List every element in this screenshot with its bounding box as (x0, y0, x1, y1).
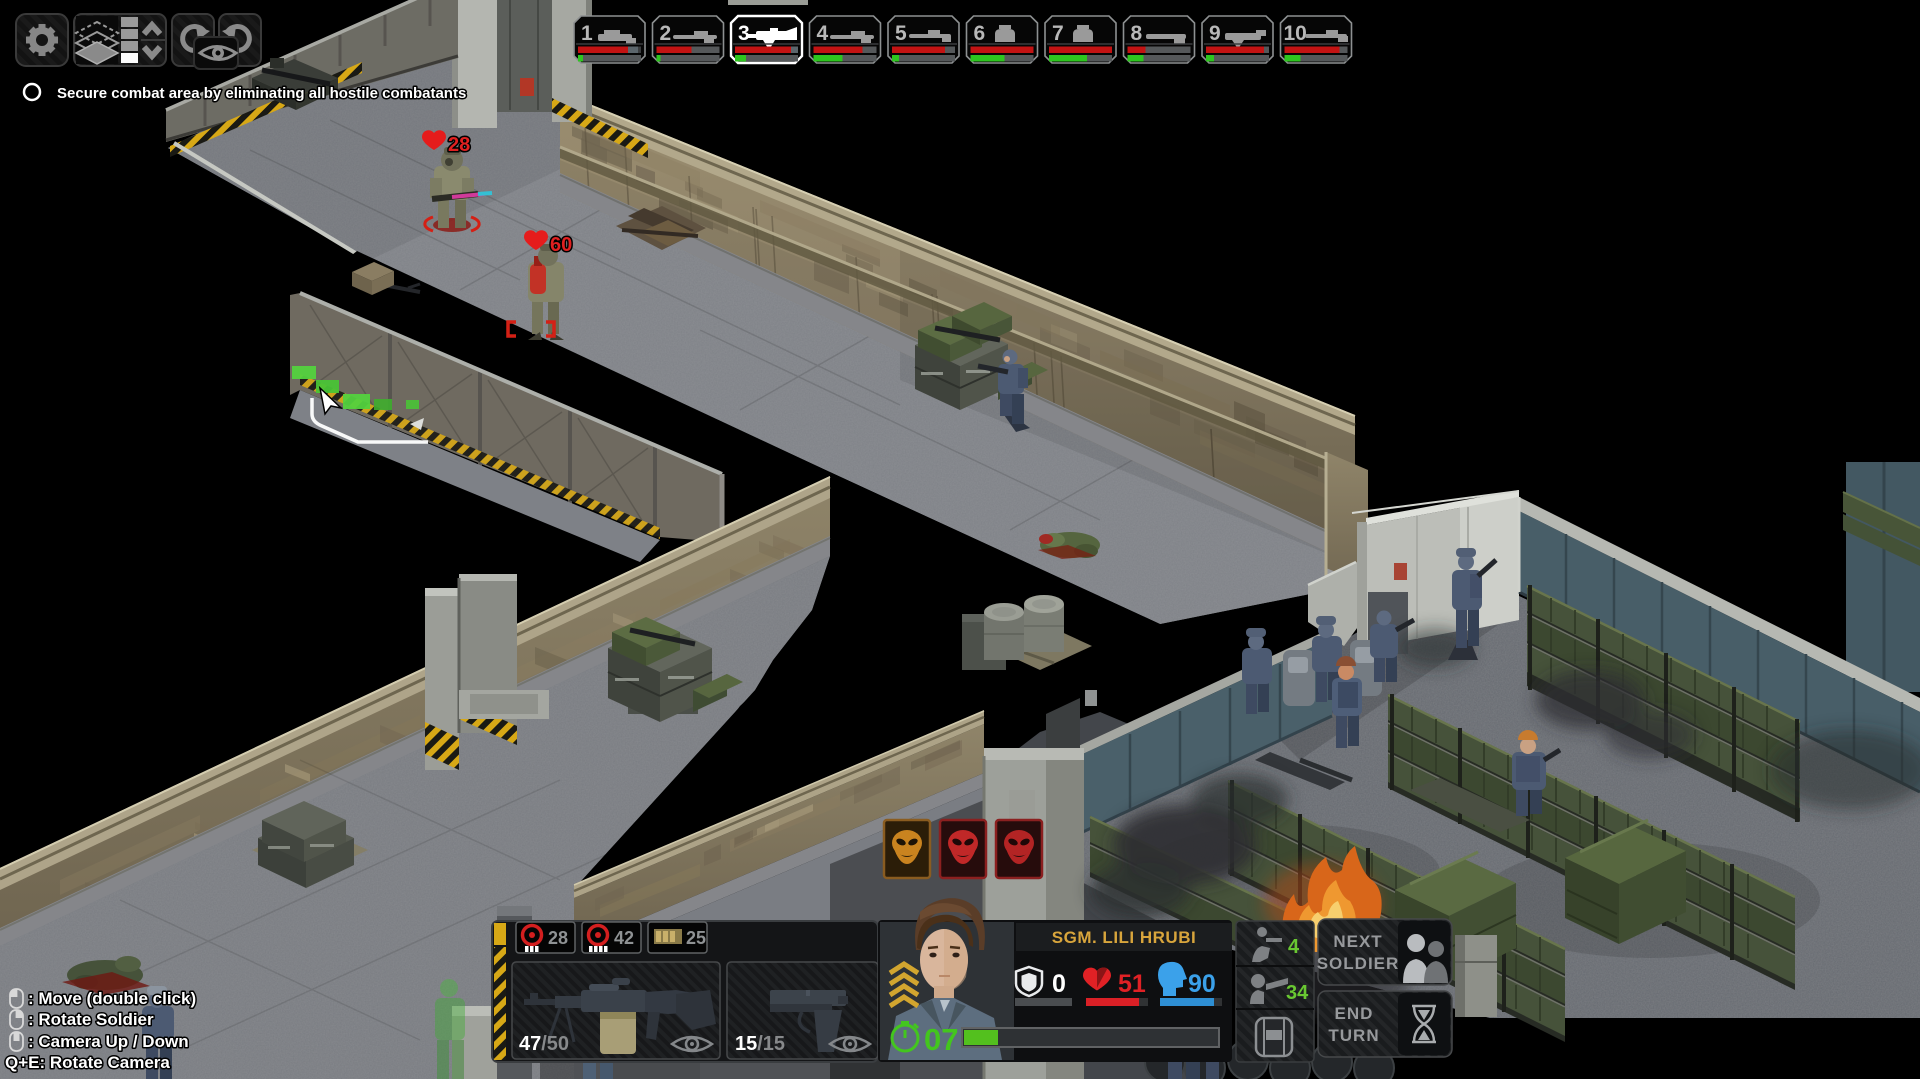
svg-text:4: 4 (817, 22, 829, 45)
svg-text:42: 42 (614, 928, 634, 948)
svg-text:6: 6 (974, 22, 986, 45)
svg-text:25: 25 (686, 928, 706, 948)
svg-text:: Move (double click): : Move (double click) (28, 989, 196, 1008)
svg-text:2: 2 (660, 22, 672, 45)
svg-text:TURN: TURN (1328, 1026, 1379, 1045)
svg-text:51: 51 (1118, 970, 1146, 998)
svg-text:15/15: 15/15 (735, 1033, 785, 1055)
svg-text:3: 3 (738, 22, 750, 45)
svg-text:SGM. LILI HRUBI: SGM. LILI HRUBI (1052, 928, 1196, 947)
svg-text:9: 9 (1209, 22, 1221, 45)
svg-text:Secure combat area by eliminat: Secure combat area by eliminating all ho… (57, 85, 466, 102)
svg-text:SOLDIER: SOLDIER (1317, 954, 1400, 973)
svg-text:07: 07 (924, 1022, 958, 1057)
svg-text:5: 5 (895, 22, 907, 45)
svg-text:34: 34 (1286, 982, 1309, 1004)
svg-text:28: 28 (448, 134, 470, 156)
svg-text:28: 28 (548, 928, 568, 948)
svg-text:Q+E: Rotate Camera: Q+E: Rotate Camera (5, 1053, 170, 1072)
svg-text:NEXT: NEXT (1333, 932, 1382, 951)
svg-text:8: 8 (1131, 22, 1143, 45)
svg-text:: Rotate Soldier: : Rotate Soldier (28, 1010, 154, 1029)
svg-text:60: 60 (550, 234, 572, 256)
svg-text:47/50: 47/50 (519, 1033, 569, 1055)
svg-text:7: 7 (1052, 22, 1064, 45)
svg-text:10: 10 (1284, 22, 1307, 45)
svg-text:0: 0 (1052, 970, 1066, 998)
svg-text:1: 1 (581, 22, 593, 45)
svg-text:: Camera Up / Down: : Camera Up / Down (28, 1032, 189, 1051)
svg-text:4: 4 (1288, 936, 1300, 958)
svg-text:END: END (1335, 1004, 1374, 1023)
svg-text:90: 90 (1188, 970, 1216, 998)
